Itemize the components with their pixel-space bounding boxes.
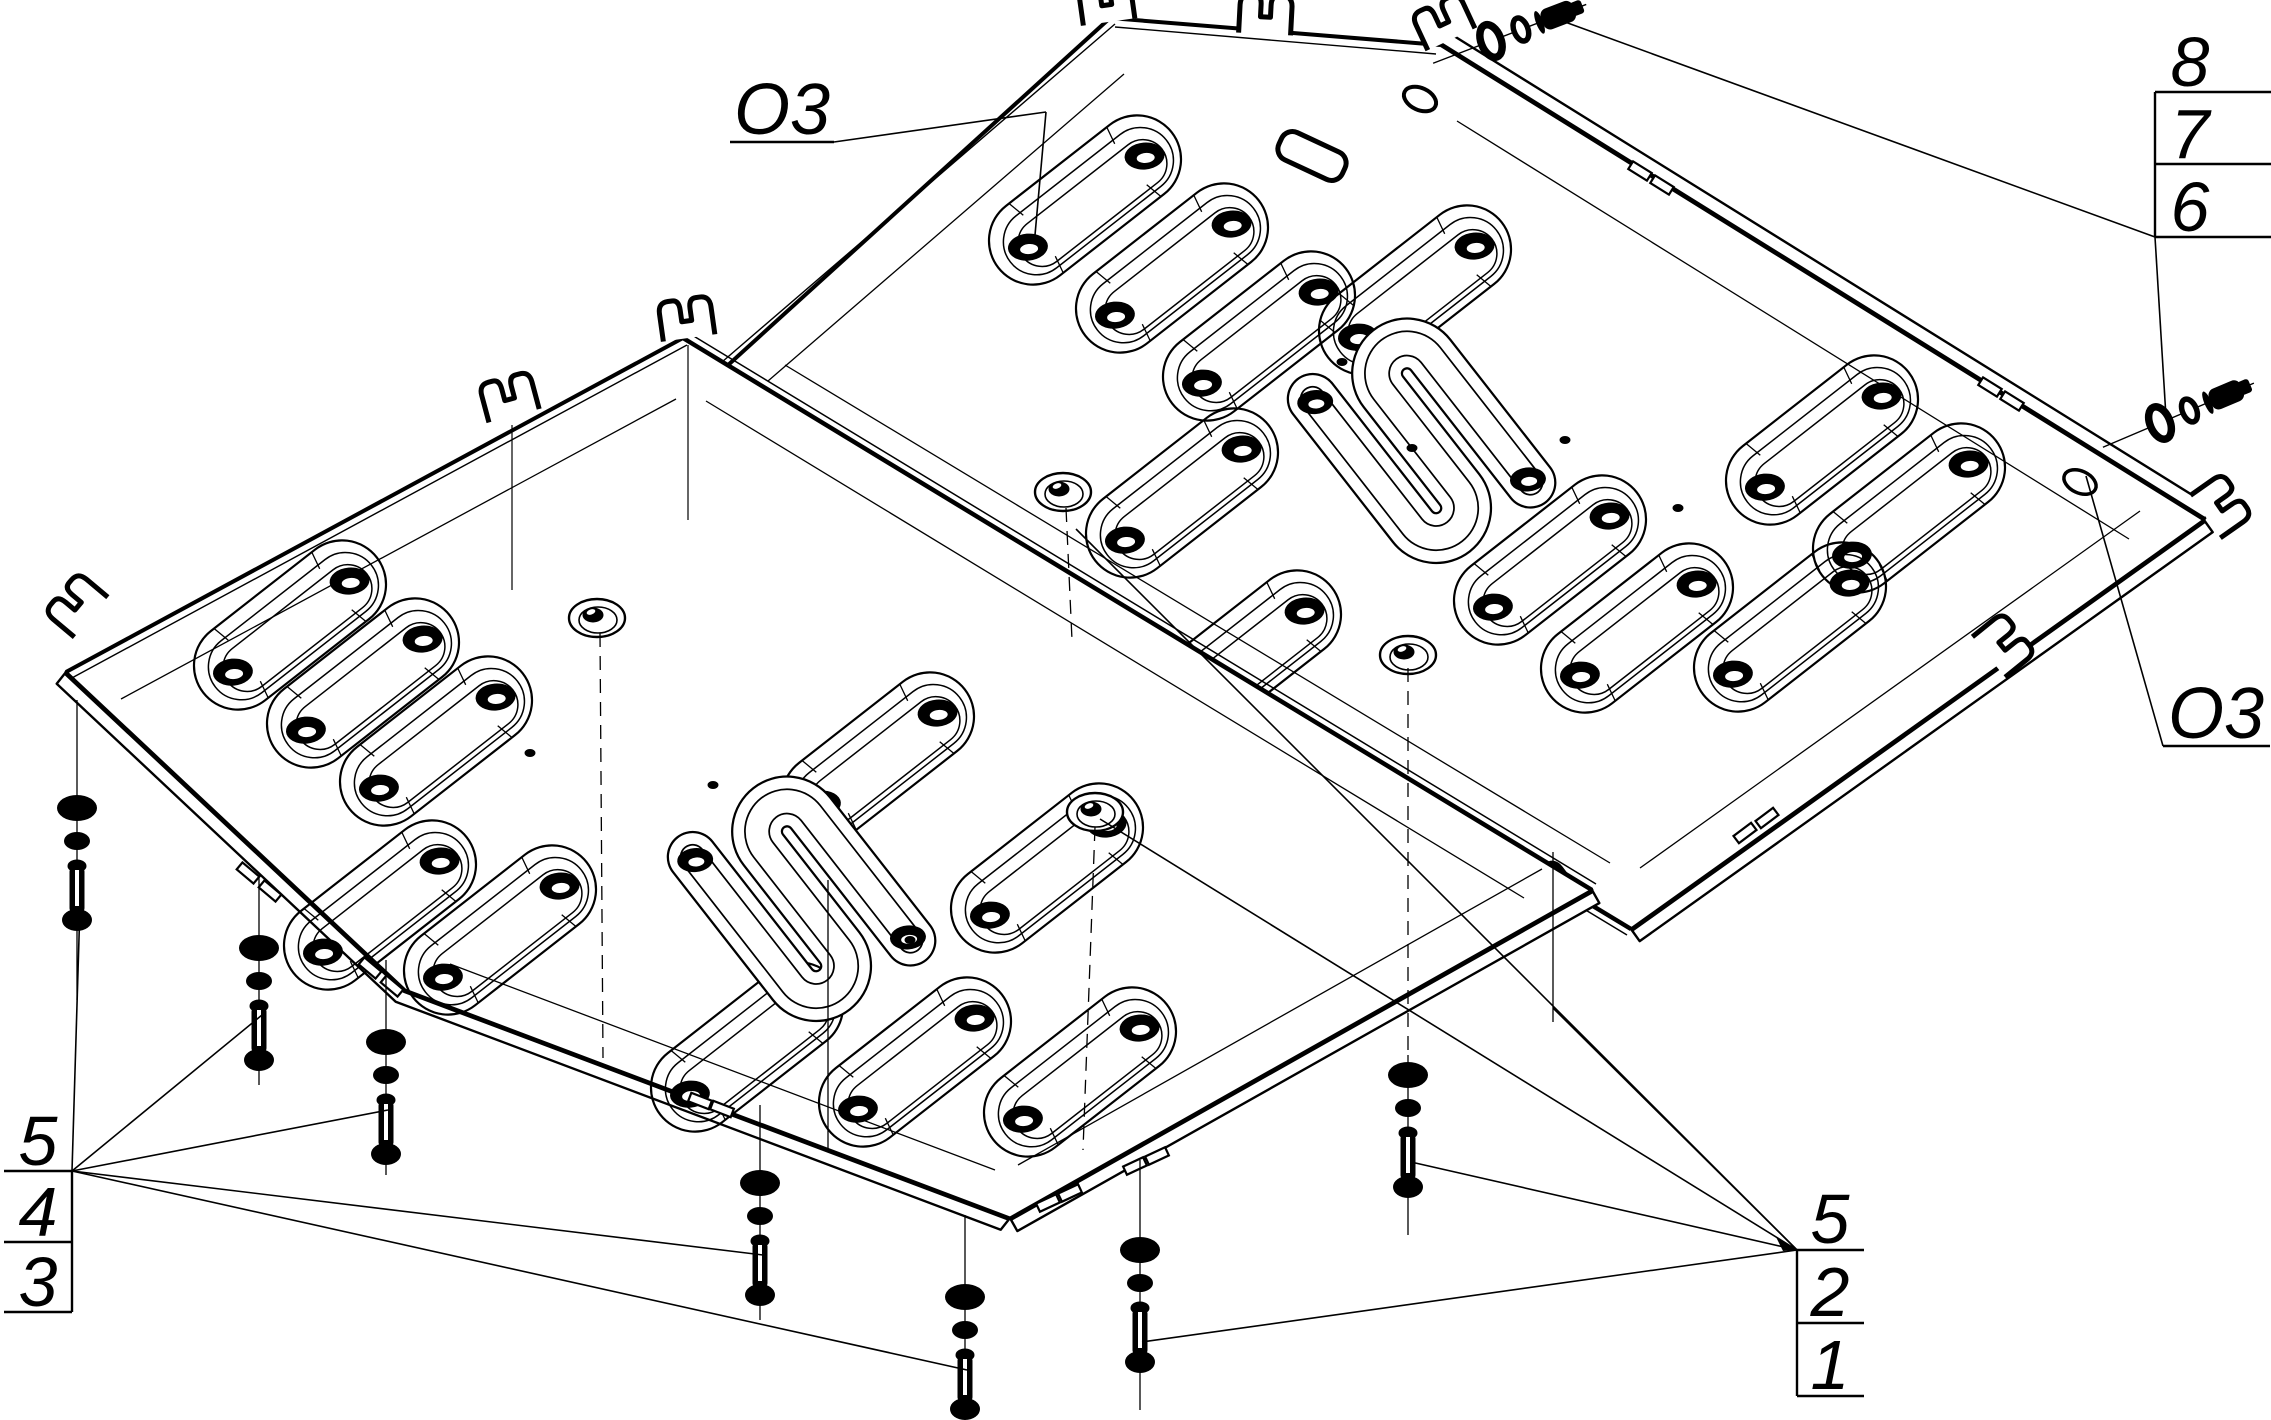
- part-number-5-right: 5: [1811, 1180, 1851, 1258]
- hole-callout-top: O3: [734, 70, 830, 150]
- exploded-assembly-drawing: O3 O3 8 7 6 5 4 3 5 2 1: [0, 0, 2271, 1420]
- part-number-3: 3: [19, 1243, 58, 1321]
- part-number-4: 4: [19, 1173, 58, 1251]
- part-number-5-left: 5: [19, 1102, 59, 1180]
- part-number-8: 8: [2171, 23, 2210, 101]
- part-number-7: 7: [2171, 95, 2213, 173]
- part-number-6: 6: [2171, 168, 2210, 246]
- part-number-2: 2: [1810, 1253, 1850, 1331]
- technical-drawing-page: O3 O3 8 7 6 5 4 3 5 2 1: [0, 0, 2271, 1420]
- hole-callout-right: O3: [2168, 674, 2264, 754]
- part-number-1: 1: [1811, 1326, 1850, 1404]
